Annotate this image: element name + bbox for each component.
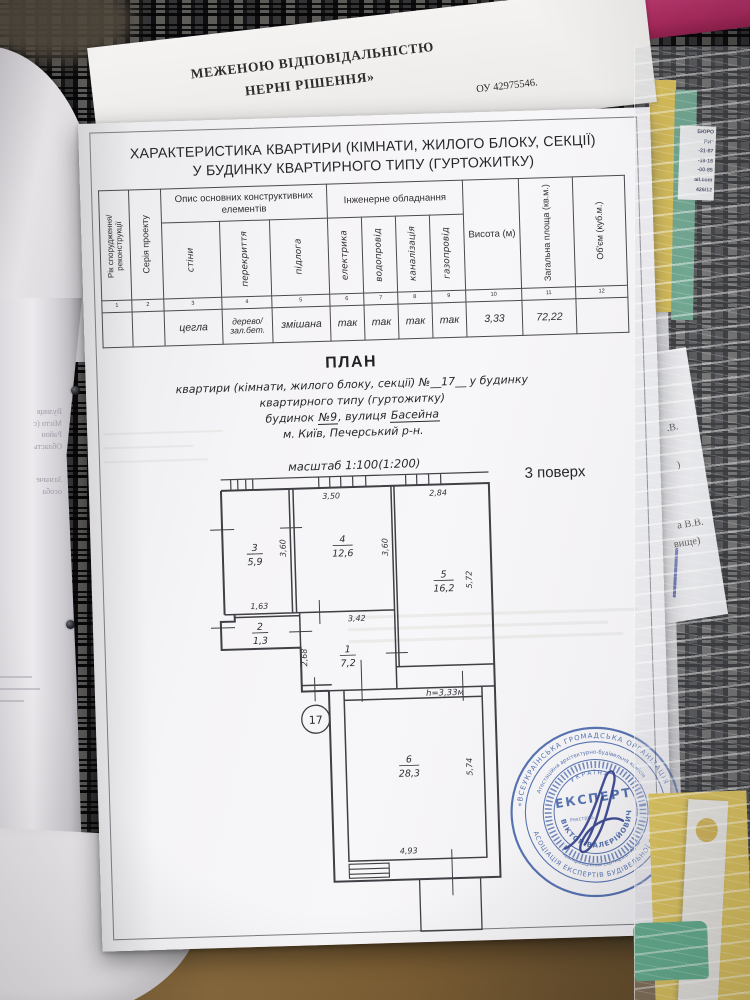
svg-text:6: 6 — [406, 754, 412, 765]
inner-walls — [221, 483, 500, 865]
svg-text:16,2: 16,2 — [433, 583, 454, 595]
svg-text:2: 2 — [257, 622, 263, 633]
room-labels: 35,9 412,6 516,2 21,3 17,2 628,3 — [246, 531, 460, 784]
group-header-engineering: Інженерне обладнання — [326, 180, 463, 218]
svg-text:4: 4 — [339, 534, 345, 545]
svg-text:1,3: 1,3 — [253, 636, 268, 647]
value-gas: так — [432, 302, 467, 338]
room-label-3: 35,9 — [247, 543, 264, 568]
dim-top-room4: 3,50 — [322, 491, 340, 501]
col-header-water: водопровід — [361, 216, 397, 293]
dim-side-room5: 5,72 — [464, 571, 474, 589]
dim-top-room5: 2,84 — [429, 488, 447, 498]
document-page: ХАРАКТЕРИСТИКА КВАРТИРИ (КІМНАТИ, ЖИЛОГО… — [78, 107, 674, 952]
col-header-walls: стіни — [161, 221, 221, 299]
value-volume — [576, 297, 629, 334]
dim-side-room1: 2,68 — [300, 648, 310, 666]
value-sewer: так — [398, 303, 433, 339]
plastic-sleeve — [634, 46, 750, 1000]
photo-scene: БЮРО РИ" -31-87 -19-16 -00-85 ail.com 42… — [0, 0, 750, 1000]
value-walls: цегла — [164, 309, 223, 346]
dim-side-room6: 5,74 — [465, 758, 475, 776]
window-hatch-room6 — [349, 863, 389, 878]
value-series — [132, 311, 165, 347]
dim-bottom-room6: 4,93 — [400, 846, 418, 856]
characteristics-table: Рік спорудження/ реконструкції Серія про… — [98, 175, 629, 349]
ceiling-height-note: h=3,33м — [426, 688, 465, 699]
street-name: Басейна — [390, 407, 441, 422]
svg-text:12,6: 12,6 — [332, 548, 353, 560]
floor-plan-drawing: 35,9 412,6 516,2 21,3 17,2 628,3 3,50 2,… — [200, 462, 554, 952]
svg-text:7,2: 7,2 — [340, 658, 355, 669]
apartment-number: 17 — [309, 714, 323, 727]
value-electric: так — [330, 305, 365, 341]
apartment-number-circle: 17 — [301, 705, 330, 734]
room-label-6: 628,3 — [398, 754, 420, 780]
value-water: так — [364, 304, 399, 340]
dim-side-room3: 3,60 — [278, 539, 288, 557]
value-overlap: дерево/ зал.бет. — [222, 308, 273, 344]
binding-eyelet — [66, 620, 75, 629]
col-header-floor: підлога — [269, 218, 329, 296]
door-ticks — [208, 523, 469, 902]
col-header-electric: електрика — [327, 217, 363, 294]
value-year — [102, 312, 133, 348]
dim-top-room1: 3,42 — [348, 614, 366, 624]
room-label-4: 412,6 — [332, 534, 354, 560]
company-code-fragment: ОУ 42975546. — [476, 77, 539, 95]
curled-page-middle: Вулиця Місто (с Район Область Зазначе ос… — [0, 298, 82, 858]
room-label-5: 516,2 — [433, 569, 455, 595]
mirrored-text-block: Вулиця Місто (с Район Область Зазначе ос… — [0, 406, 62, 497]
binding-eyelet — [71, 386, 80, 395]
col-header-height: Висота (м) — [462, 178, 521, 290]
col-header-gas: газопровід — [429, 214, 465, 291]
col-header-sewer: каналізація — [395, 215, 431, 292]
value-height: 3,33 — [466, 300, 523, 337]
svg-text:1: 1 — [345, 644, 351, 655]
plan-dimensions: 3,50 2,84 3,60 3,60 5,72 1,63 3,42 2,68 … — [247, 488, 482, 860]
stamp-registry-text: Реєстрац. — [570, 814, 596, 824]
col-header-year: Рік спорудження/ реконструкції — [98, 190, 131, 301]
svg-text:3: 3 — [251, 543, 257, 554]
room-label-1: 17,2 — [340, 644, 357, 669]
dim-bottom-room3: 1,63 — [250, 602, 268, 612]
svg-text:28,3: 28,3 — [399, 768, 420, 780]
top-windows — [221, 472, 489, 491]
group-header-construction: Опис основних конструктивних елементів — [160, 184, 327, 223]
value-area: 72,22 — [522, 299, 577, 336]
dim-side-room4: 3,60 — [380, 538, 390, 556]
col-header-volume: Об'єм (куб.м.) — [572, 175, 627, 286]
building-number: №9 — [317, 410, 338, 425]
outer-walls — [217, 483, 501, 885]
svg-text:5: 5 — [440, 569, 446, 580]
svg-text:5,9: 5,9 — [247, 557, 262, 568]
balcony-outline — [420, 877, 483, 931]
value-floor: змішана — [272, 306, 331, 343]
faint-text-lines — [0, 666, 42, 702]
col-header-area: Загальна площа (кв.м.) — [518, 177, 575, 289]
col-header-series: Серія проекту — [128, 189, 163, 300]
col-header-overlap: перекриття — [219, 220, 271, 297]
room-label-2: 21,3 — [252, 622, 269, 647]
